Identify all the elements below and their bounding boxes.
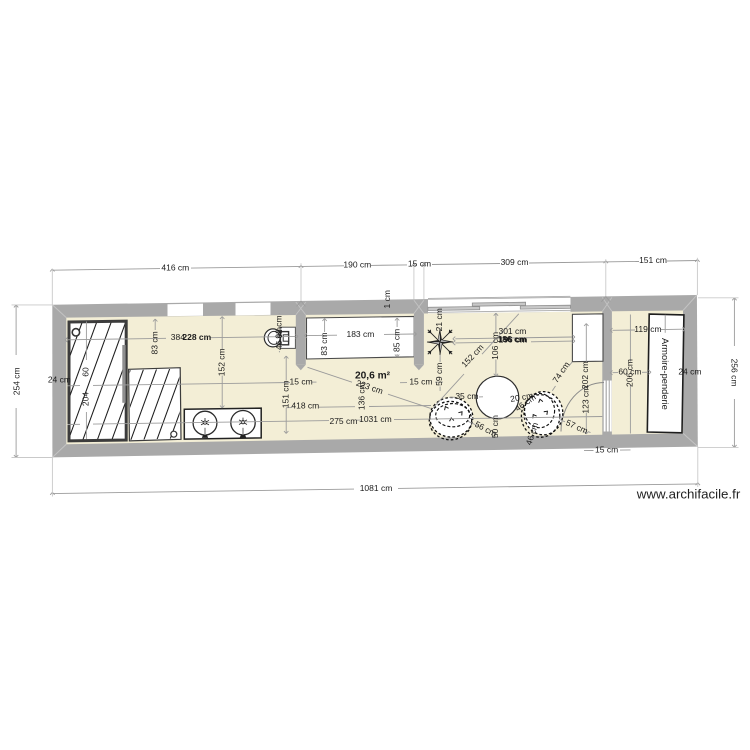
- svg-text:202 cm: 202 cm: [580, 361, 590, 389]
- svg-text:106 cm: 106 cm: [490, 332, 500, 360]
- svg-text:416 cm: 416 cm: [161, 262, 189, 272]
- svg-text:24 cm: 24 cm: [678, 367, 701, 377]
- svg-text:83 cm: 83 cm: [319, 332, 329, 355]
- svg-text:46 cm: 46 cm: [274, 327, 284, 350]
- svg-text:204: 204: [81, 392, 91, 406]
- svg-text:183 cm: 183 cm: [346, 329, 374, 339]
- svg-text:190 cm: 190 cm: [343, 260, 371, 270]
- svg-text:83 cm: 83 cm: [149, 331, 159, 354]
- svg-text:152 cm: 152 cm: [216, 348, 226, 376]
- svg-text:Armoire-penderie: Armoire-penderie: [660, 338, 670, 410]
- svg-text:www.archifacile.fr: www.archifacile.fr: [636, 487, 741, 502]
- svg-text:275 cm: 275 cm: [329, 416, 357, 426]
- svg-text:309 cm: 309 cm: [501, 257, 529, 267]
- svg-text:151 cm: 151 cm: [639, 255, 667, 265]
- svg-text:59 cm: 59 cm: [434, 363, 444, 386]
- svg-text:119 cm: 119 cm: [634, 324, 661, 334]
- svg-text:418 cm: 418 cm: [291, 401, 319, 411]
- svg-text:196 cm: 196 cm: [498, 334, 527, 344]
- svg-text:15 cm: 15 cm: [290, 377, 313, 387]
- svg-text:1031 cm: 1031 cm: [359, 414, 392, 424]
- svg-text:123 cm: 123 cm: [581, 386, 591, 414]
- svg-text:24 cm: 24 cm: [48, 375, 71, 385]
- svg-text:228 cm: 228 cm: [182, 332, 211, 342]
- svg-text:15 cm: 15 cm: [409, 377, 432, 387]
- svg-text:15 cm: 15 cm: [595, 445, 618, 455]
- svg-text:35 cm: 35 cm: [455, 391, 478, 401]
- svg-text:60: 60: [81, 367, 91, 377]
- svg-text:256 cm: 256 cm: [729, 359, 739, 387]
- svg-text:254 cm: 254 cm: [12, 367, 22, 395]
- svg-text:1 cm: 1 cm: [382, 290, 392, 308]
- svg-text:21 cm: 21 cm: [434, 308, 444, 331]
- svg-text:15 cm: 15 cm: [408, 259, 431, 269]
- svg-text:206 cm: 206 cm: [625, 359, 635, 387]
- svg-text:1081 cm: 1081 cm: [360, 483, 393, 493]
- svg-text:85 cm: 85 cm: [391, 329, 401, 352]
